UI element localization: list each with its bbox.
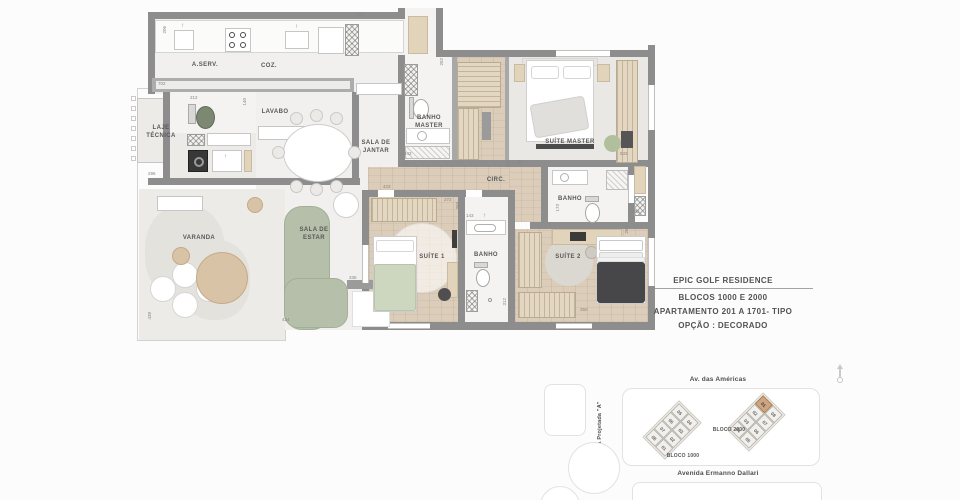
shaft-hatch [345, 24, 359, 56]
counter-702-inner [156, 81, 350, 89]
dim-label: 252 [632, 210, 640, 215]
petal-chair [172, 262, 198, 288]
dim-label: 173 [556, 204, 561, 212]
wall [458, 190, 465, 324]
dim-label: 143 [466, 214, 474, 219]
property-tick [131, 126, 136, 131]
round-table [196, 252, 248, 304]
dim-label: 336 [349, 276, 357, 281]
toilet-lavabo [196, 106, 215, 129]
faucet-icon: ↑ [483, 213, 486, 219]
street-label-americas: Av. das Américas [638, 376, 798, 383]
chair [330, 180, 343, 193]
vanity-banho2 [552, 170, 588, 185]
ac-ledge [634, 166, 646, 194]
dim-label: 140 [243, 98, 248, 106]
divider [655, 288, 813, 289]
sofa-chaise [284, 278, 348, 328]
room-label-aserv: A.SERV. [184, 62, 226, 70]
laptop [570, 232, 586, 241]
bench [157, 196, 203, 211]
wall [352, 92, 359, 182]
basin [474, 224, 496, 232]
closet-item [482, 112, 491, 140]
stove [225, 28, 251, 52]
room-label-circ: CIRC. [478, 177, 514, 185]
property-tick [131, 146, 136, 151]
property-tick [131, 156, 136, 161]
cabinet [244, 150, 252, 172]
shaft-hatch [404, 64, 418, 96]
chair [310, 183, 323, 196]
room-label-coz: COZ. [248, 63, 290, 71]
map-roundabout [568, 442, 620, 494]
window [556, 323, 592, 329]
wardrobe-handle [621, 131, 633, 148]
pouf [247, 197, 263, 213]
basin [560, 173, 569, 182]
rug-green [604, 135, 621, 152]
laundry-sink [212, 150, 242, 172]
nightstand [514, 64, 525, 82]
chair [330, 112, 343, 125]
pillow [376, 240, 414, 252]
dim-label: 206 [163, 26, 168, 34]
map-roundabout [540, 486, 580, 500]
dim-label: 423 [383, 185, 391, 190]
dim-label: 215 [356, 13, 364, 18]
dim-label: 438 [148, 312, 153, 320]
room-label-estar: SALA DE ESTAR [292, 227, 336, 243]
service-counter [207, 133, 251, 146]
chair [272, 146, 285, 159]
pillow [531, 66, 559, 79]
room-label-jantar: SALA DE JANTAR [354, 140, 398, 156]
toilet-tank [188, 104, 196, 124]
window [388, 323, 430, 329]
toilet-tank [474, 262, 488, 268]
petal-chair [172, 292, 198, 318]
map-parcel [544, 384, 586, 436]
drain [488, 298, 492, 302]
wall [530, 222, 648, 229]
closet-shelves [457, 108, 479, 160]
shower-door [466, 290, 478, 312]
wall [508, 190, 515, 322]
chair [290, 180, 303, 193]
faucet-icon: ↑ [224, 154, 227, 160]
window [556, 50, 610, 57]
room-label-laje: LAJE TÉCNICA [138, 125, 184, 141]
side-table [333, 192, 359, 218]
kitchen-island [356, 83, 402, 95]
shower-box [606, 170, 628, 190]
door-opening [378, 190, 394, 197]
room-label-suite1: SUÍTE 1 [410, 254, 454, 262]
dim-label: 350 [580, 308, 588, 313]
entry-door [408, 16, 428, 54]
north-arrow-icon [833, 364, 847, 384]
bloco-1000-label: BLOCO 1000 [653, 453, 713, 459]
wardrobe-suite1 [371, 198, 437, 222]
room-label-varanda: VARANDA [176, 235, 222, 243]
map-parcel [632, 482, 822, 500]
closet-shelves [457, 62, 501, 108]
dim-label: 369 [456, 202, 461, 210]
shaft-hatch [187, 134, 205, 146]
pillow [563, 66, 591, 79]
dim-label: 702 [158, 82, 166, 87]
fridge [318, 27, 344, 54]
bloco-2000-label: BLOCO 2000 [700, 427, 758, 433]
room-label-banho1: BANHO [466, 252, 506, 260]
pillow [599, 240, 643, 251]
blanket-green [374, 264, 416, 311]
wall [505, 57, 509, 162]
toilet-banho1 [476, 269, 490, 287]
property-tick [131, 96, 136, 101]
info-apartment: APARTAMENTO 201 A 1701- TIPO [633, 307, 813, 316]
dim-label: 212 [190, 96, 198, 101]
dim-label: 262 [440, 58, 445, 66]
rug-gray [545, 238, 593, 286]
dim-label: 272 [444, 198, 452, 203]
dim-label: 312 [503, 298, 508, 306]
chair [310, 109, 323, 122]
dim-label: 424 [282, 318, 290, 323]
street-label-dallari: Avenida Ermanno Dallari [638, 470, 798, 477]
wall [541, 163, 548, 229]
basin [417, 131, 427, 141]
property-tick [131, 116, 136, 121]
project-title: EPIC GOLF RESIDENCE [633, 276, 813, 285]
washer-top [174, 30, 194, 50]
wall [398, 8, 405, 19]
kitchen-sink [285, 31, 309, 49]
wall [436, 50, 655, 57]
dim-label: 533 [620, 152, 628, 157]
dim-label: 143 [404, 152, 412, 157]
dim-label: 260 [625, 226, 630, 234]
closet-suite2 [518, 232, 542, 288]
dim-label: 49 [518, 160, 523, 165]
wall [148, 12, 404, 19]
desk-chair [438, 288, 451, 301]
window [648, 85, 655, 130]
door-opening [466, 190, 482, 197]
property-tick [131, 106, 136, 111]
faucet-icon: ↑ [295, 24, 298, 30]
room-label-lavabo: LAVABO [255, 109, 295, 117]
room-label-suite-master: SUÍTE MASTER [540, 139, 600, 147]
wardrobe-suite2 [518, 292, 576, 318]
floorplan-page: ↑ ↑ ↑ [0, 0, 960, 500]
washer [188, 150, 208, 172]
petal-chair [150, 276, 176, 302]
room-label-banho-master: BANHO MASTER [410, 115, 448, 131]
nightstand [597, 64, 610, 82]
info-option: OPÇÃO : DECORADO [633, 321, 813, 330]
dining-table [283, 124, 353, 182]
dim-label: 296 [148, 172, 156, 177]
tv-suite1 [452, 230, 457, 248]
toilet-banho2 [585, 203, 600, 223]
info-blocks: BLOCOS 1000 E 2000 [633, 293, 813, 302]
dim-label: 152 [506, 160, 511, 168]
small-pot [172, 247, 190, 265]
window [362, 245, 369, 283]
property-tick [131, 136, 136, 141]
room-label-suite2: SUÍTE 2 [546, 254, 590, 262]
faucet-icon: ↑ [181, 23, 184, 29]
dim-label: 227 [402, 162, 410, 167]
